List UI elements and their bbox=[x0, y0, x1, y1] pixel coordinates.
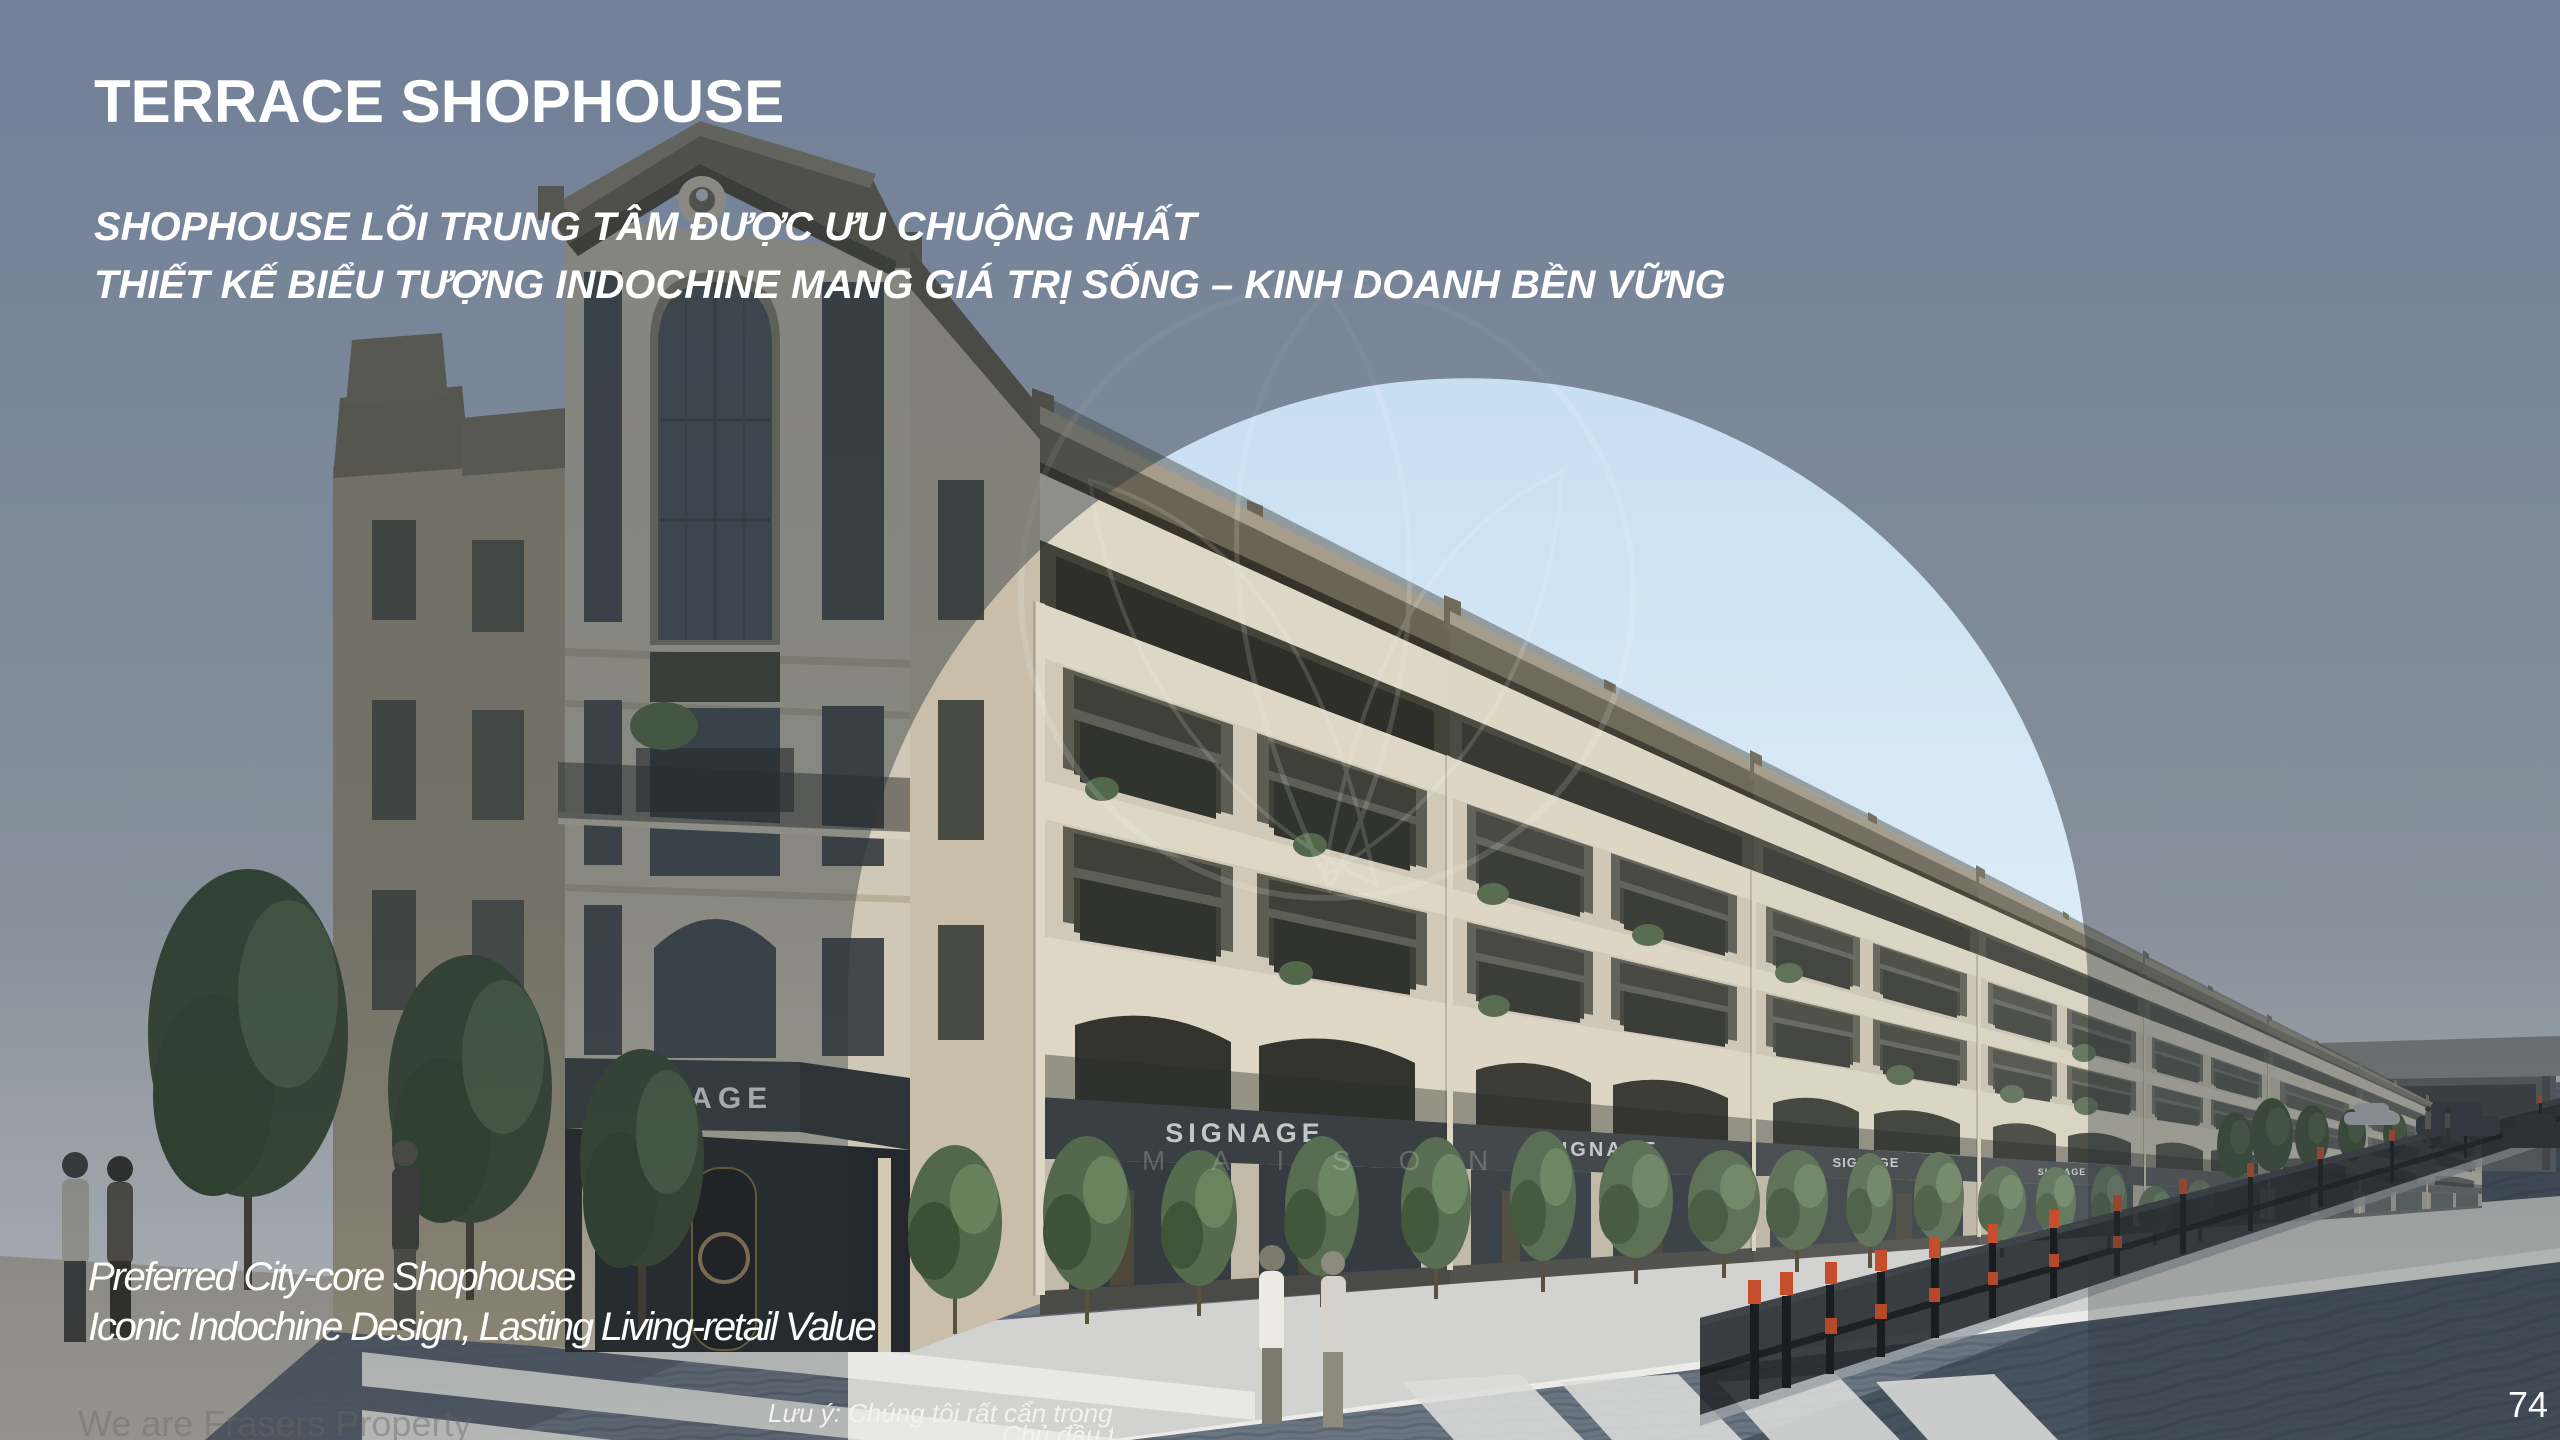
svg-text:SIGNAGE: SIGNAGE bbox=[1165, 1118, 1325, 1148]
svg-text:TERRACE SHOPHOUSE: TERRACE SHOPHOUSE bbox=[94, 68, 784, 135]
svg-text:Preferred City-core Shophouse: Preferred City-core Shophouse bbox=[88, 1255, 575, 1299]
svg-text:THIẾT KẾ BIỂU TƯỢNG INDOCHINE: THIẾT KẾ BIỂU TƯỢNG INDOCHINE MANG GIÁ T… bbox=[94, 260, 1726, 307]
svg-text:Iconic Indochine Design, Lasti: Iconic Indochine Design, Lasting Living-… bbox=[88, 1305, 876, 1349]
svg-text:SHOPHOUSE LÕI TRUNG TÂM ĐƯỢC Ư: SHOPHOUSE LÕI TRUNG TÂM ĐƯỢC ƯU CHUỘNG N… bbox=[94, 203, 1200, 249]
svg-text:M A I S O N: M A I S O N bbox=[1142, 1145, 1508, 1176]
svg-text:74: 74 bbox=[2508, 1384, 2548, 1425]
svg-text:We are Frasers Property: We are Frasers Property bbox=[78, 1403, 471, 1440]
